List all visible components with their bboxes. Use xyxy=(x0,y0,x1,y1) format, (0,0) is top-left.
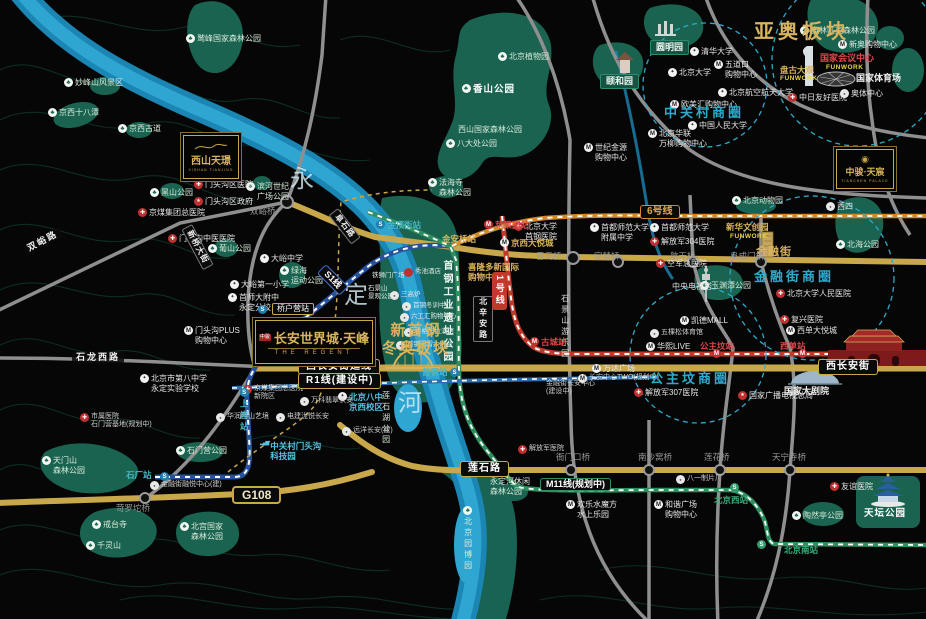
gongzhufen-m-icon: M xyxy=(712,349,721,358)
dot-icon: ● xyxy=(216,413,225,422)
beijing-west-station-text: 北京西站 xyxy=(714,495,748,505)
xiangshan-park-text: 香山公园 xyxy=(473,84,515,95)
beijing-south-station-text: 北京南站 xyxy=(784,545,818,555)
dot-icon: ● xyxy=(402,302,411,311)
youyi-hospital: ✚友谊医院 xyxy=(830,482,873,492)
lianhua-bridge: 莲花桥 xyxy=(704,452,730,462)
school-icon: ✦ xyxy=(668,68,677,77)
jinrongjie-circle: 金融街商圈 xyxy=(754,269,834,285)
badachu-park: ♣八大处公园 xyxy=(446,139,497,149)
heishan-park-text: 黑山公园 xyxy=(161,188,193,198)
xishan-name: 西山天璟 xyxy=(191,152,231,167)
changan-center-two-text: 长安中心TWO(规划中) xyxy=(589,374,659,382)
shuangyu-bridge: 双峪桥 xyxy=(250,206,276,216)
hosp-icon: ✚ xyxy=(780,315,789,324)
shimenying-park: ♣石门营公园 xyxy=(176,446,227,456)
changan-pill-text: 西长安街 xyxy=(826,361,870,373)
fuxing-hospital: ✚复兴医院 xyxy=(780,315,823,325)
jiufeng-forest-park-text: 鹫峰国家森林公园 xyxy=(197,34,261,44)
bj-no8-jingxi-campus-text: 北京八中 京西校区 xyxy=(349,392,383,412)
youyi-hospital-text: 友谊医院 xyxy=(841,482,873,492)
park-icon: ♣ xyxy=(48,108,57,117)
bayi-film-studio-text: 八一制片厂 xyxy=(687,475,722,483)
dot-icon: ● xyxy=(840,89,849,98)
river-char-he: 河 xyxy=(398,390,422,419)
cnu-affiliated-school: ✦首都师范大学 附属中学 xyxy=(590,223,649,242)
hosp-icon: ✚ xyxy=(634,388,643,397)
shimenying-park-text: 石门营公园 xyxy=(187,446,227,456)
wukesong-arena-text: 五棵松体育馆 xyxy=(661,329,703,337)
hosp-icon: ✚ xyxy=(830,482,839,491)
vanke-feicui-changan-text: 万科翡翠长安 xyxy=(311,397,353,405)
shimenying-hospital-base: ✚市属医院 石门营基地(规划中) xyxy=(80,413,152,430)
fuxing-hospital-text: 复兴医院 xyxy=(791,315,823,325)
jingxi-shibatan: ♣京西十八潭 xyxy=(48,108,99,118)
mall-icon: M xyxy=(648,129,657,138)
xinhua-cultural-park-text: 新华文创园 xyxy=(726,222,769,232)
pku-peoples-hospital: ✚北京大学人民医院 xyxy=(776,289,851,299)
yamenkou-bridge: 衙门口桥 xyxy=(556,452,590,462)
shuangyu-bridge-text: 双峪桥 xyxy=(250,206,276,216)
heishan-park: ♣黑山公园 xyxy=(150,188,193,198)
yuanmingyuan: 圆明园 xyxy=(650,40,689,55)
gov-icon: ★ xyxy=(194,197,203,206)
tianchen-emblem-icon: ◉ xyxy=(861,155,869,164)
mall-icon: M xyxy=(184,326,193,335)
zgc-mentougou-techpark-text: 中关村门头沟 科技园 xyxy=(270,441,321,461)
wukesong-arena: ●五棵松体育馆 xyxy=(650,329,703,338)
dot-icon: ● xyxy=(676,475,685,484)
yuanyang-changan-text: 远洋长安(建) xyxy=(353,427,393,435)
pushan-park: ♣葡山公园 xyxy=(208,244,251,254)
line1-pill-text: 1号线 xyxy=(494,275,505,307)
liugonghui-mall-text: 六工汇购物中心 xyxy=(411,313,457,321)
line1-pill: 1号线 xyxy=(492,272,507,310)
pangu-funwork-text: FUNWORK xyxy=(780,75,817,83)
beixinan-road-pill-text: 北辛安路 xyxy=(478,297,488,341)
ncpa-grand-theatre-text: 国家大剧院 xyxy=(784,386,829,397)
badachu-park-text: 八大处公园 xyxy=(457,139,497,149)
summer-palace-text: 颐和园 xyxy=(606,76,633,87)
xisi: ●西四 xyxy=(826,202,853,212)
school-icon: ✦ xyxy=(260,254,269,263)
tiantan-park-text: 天坛公园 xyxy=(864,508,906,519)
yaao-block-title-text: 亚奥板块 xyxy=(754,20,850,44)
ncc-funwork: FUNWORK xyxy=(826,64,863,72)
m11-line-pill-text: M11线(规划中) xyxy=(546,479,605,490)
mentougou-hospital-text: 门头沟区医院 xyxy=(205,180,253,190)
jinyuan-bridge: 晋元桥 xyxy=(536,251,562,261)
shougang-winter-training: ●首钢冬训中心 xyxy=(402,302,452,311)
huaxi-live: M华熙LIVE xyxy=(646,342,690,352)
mentougou-government: ★门头沟区政府 xyxy=(194,197,253,207)
dayu-middle-school: ✦大峪中学 xyxy=(260,254,303,264)
park-icon: ♣ xyxy=(428,178,437,187)
park-icon: ♣ xyxy=(462,84,471,93)
mall-icon: M xyxy=(786,326,795,335)
main-project-name-row: 中骏 长安世界城·天峰 xyxy=(259,328,369,347)
fushi-road-pill-text: 阜石路 xyxy=(333,213,357,240)
jinanqiao-station-text: 金安桥站 xyxy=(442,234,476,244)
sg-icon: S xyxy=(730,483,739,492)
hexie-plaza-mall: M和谐广场 购物中心 xyxy=(654,500,697,519)
m11-line-pill: M11线(规划中) xyxy=(540,478,611,491)
park-icon: ♣ xyxy=(150,188,159,197)
wudaokou-mall-text: 五道口 购物中心 xyxy=(725,60,757,79)
qianlingshan-text: 千灵山 xyxy=(97,541,121,551)
jingmei-new-campus: ✚京煤集团总医院 新院区 xyxy=(243,385,303,402)
g108-badge-text: G108 xyxy=(242,488,271,502)
changan-pill: 西长安街 xyxy=(818,359,878,375)
shichang-station: 石厂站 xyxy=(126,470,152,480)
tianmenshan-forest-park-text: 天门山 森林公园 xyxy=(53,456,85,475)
jingxi-gudao-text: 京西古道 xyxy=(129,124,161,134)
s1-icon: S xyxy=(240,388,249,397)
keluotuo-bridge-text: 苛罗坨桥 xyxy=(116,503,150,513)
beixinan-road-pill: 北辛安路 xyxy=(473,296,493,342)
qiaohuying-station: 桥户营站 xyxy=(272,303,314,315)
tielishimen-plaza: 铁狮门广场 xyxy=(372,272,405,280)
gucheng-station-text: 古城站 xyxy=(541,337,567,347)
fuchengmen-bridge-text: 阜成门桥 xyxy=(730,251,764,261)
jingxi-shibatan-text: 京西十八潭 xyxy=(59,108,99,118)
s1-icon: S xyxy=(376,220,385,229)
qiaohuying-station-text: 桥户营站 xyxy=(277,304,309,314)
lvhai-sports-park-text: 绿海 运动公园 xyxy=(291,266,323,285)
yongdinghe-leisure-park: 永定河休闲 森林公园 xyxy=(490,477,530,496)
tielishimen-plaza-text: 铁狮门广场 xyxy=(372,272,405,280)
mall-icon: M xyxy=(714,60,723,69)
pingguoyuan-station-text: 苹果园站 xyxy=(495,220,529,230)
xishan-en: XISHAN TIANJING xyxy=(189,168,234,172)
rdot-icon: ● xyxy=(404,268,413,277)
huaxi-live-text: 华熙LIVE xyxy=(657,342,690,352)
zhongjun-seal: 中骏 xyxy=(259,334,271,341)
hangtian-bridge-text: 航天桥 xyxy=(670,251,696,261)
tiantan-park: 天坛公园 xyxy=(864,508,906,519)
line6-pill: 6号线 xyxy=(640,205,680,219)
shichang-s-icon: S xyxy=(160,472,169,481)
hualian-wanliu-mall: M北京华联 万柳购物中心 xyxy=(648,129,707,148)
miaofengshan-scenic: ♣妙峰山风景区 xyxy=(64,78,123,88)
jingmei-group-hospital: ✚京煤集团总医院 xyxy=(138,208,205,218)
taoranting-park-text: 陶然亭公园 xyxy=(803,511,843,521)
dayu-first-primary: ✦大峪第一小学 xyxy=(230,280,289,290)
pla-307-hospital: ✚解放军307医院 xyxy=(634,388,698,398)
lianshi-road-pill-text: 莲石路 xyxy=(468,463,501,475)
tsinghua-university-text: 清华大学 xyxy=(701,47,733,57)
pingguoyuan-station: M苹果园站 xyxy=(484,220,529,230)
xiangshan-park: ♣香山公园 xyxy=(462,84,515,95)
park-icon: ♣ xyxy=(118,124,127,133)
gucheng-station: M古城站 xyxy=(530,337,567,347)
nanshawo-bridge: 南沙窝桥 xyxy=(638,452,672,462)
shougang-station: 首钢站 xyxy=(422,367,448,377)
beijing-zoo-text: 北京动物园 xyxy=(743,196,783,206)
sangaolu-showplace: ●三高炉 xyxy=(390,291,421,300)
park-icon: ♣ xyxy=(498,52,507,61)
mall-icon: M xyxy=(500,238,509,247)
mall-icon: M xyxy=(654,500,663,509)
wanda-plaza-text: 万达广场 xyxy=(603,364,635,374)
jietai-temple-text: 戒台寺 xyxy=(103,520,127,530)
mall-icon: M xyxy=(646,342,655,351)
s1-icon: S xyxy=(160,472,169,481)
dayu-first-primary-text: 大峪第一小学 xyxy=(241,280,289,290)
wudaokou-mall: M五道口 购物中心 xyxy=(714,60,757,79)
jietai-temple: ♣戒台寺 xyxy=(92,520,127,530)
tianchen-name: 中骏·天宸 xyxy=(845,165,884,178)
shougang-block-title-text: 新首钢 冬奥板块 xyxy=(382,322,450,358)
xisi-text: 西四 xyxy=(837,202,853,212)
hosp-icon: ✚ xyxy=(194,180,203,189)
mred-icon: M xyxy=(530,337,539,346)
gongzhufen-circle: 公主坟商圈 xyxy=(650,371,730,387)
jinanqiao-station: 金安桥站 xyxy=(442,234,476,244)
xiuchi-hotel-text: 秀池酒店 xyxy=(415,268,441,276)
beihai-park: ♣北海公园 xyxy=(836,240,879,250)
xidan-joy-city: M西单大悦城 xyxy=(786,326,837,336)
gold-flourish-icon xyxy=(194,143,228,151)
miaofengshan-scenic-text: 妙峰山风景区 xyxy=(75,78,123,88)
yuanmingyuan-text: 圆明园 xyxy=(656,42,683,53)
botanical-garden-text: 北京植物园 xyxy=(509,52,549,62)
capital-normal-university-text: 首都师范大学 xyxy=(661,223,709,233)
hosp-icon: ✚ xyxy=(776,289,785,298)
hangtian-bridge: 航天桥 xyxy=(670,251,696,261)
xishan-tianjing-logo: 西山天璟 XISHAN TIANJING xyxy=(183,135,239,179)
hosp-icon: ✚ xyxy=(518,445,527,454)
main-project-en: THE REGENT xyxy=(275,350,354,356)
yuanboyuan-park: ♣北京园博园 xyxy=(463,506,473,572)
beijing-south-station: 北京南站 xyxy=(784,545,818,555)
xinhua-cultural-park: 新华文创园 xyxy=(726,222,769,232)
gov-icon: ★ xyxy=(738,391,747,400)
dot-icon: ● xyxy=(300,397,309,406)
s1-line-pill-text: S1线 xyxy=(322,269,344,291)
capitaland-mall: M凯德MALL xyxy=(680,316,728,326)
park-icon: ♣ xyxy=(42,456,51,465)
bj-no8-yongding-school-text: 北京市第八中学 永定实验学校 xyxy=(151,374,207,393)
mentougou-plus-mall: M门头沟PLUS 购物中心 xyxy=(184,326,240,345)
river-char-yong-text: 永 xyxy=(290,166,314,195)
park-icon: ♣ xyxy=(836,240,845,249)
shijijinyuan-mall-text: 世纪金源 购物中心 xyxy=(595,143,627,162)
dot-icon: ● xyxy=(400,313,409,322)
school-icon: ✦ xyxy=(590,223,599,232)
beijing-zoo: ♣北京动物园 xyxy=(732,196,783,206)
mred-icon: M xyxy=(798,349,807,358)
wanda-plaza: M万达广场 xyxy=(592,364,635,374)
dot-icon: ● xyxy=(276,413,285,422)
pla-304-hospital: ✚解放军304医院 xyxy=(650,237,714,247)
yuanboyuan-park-text: 北京园博园 xyxy=(463,517,473,572)
pla-307-hospital-text: 解放军307医院 xyxy=(645,388,698,398)
yamenkou-bridge-text: 衙门口桥 xyxy=(556,452,590,462)
main-project-name: 长安世界城·天峰 xyxy=(274,328,369,347)
tianmenshan-forest-park: ♣天门山 森林公园 xyxy=(42,456,85,475)
cctv-tower-text: 中央电视塔 xyxy=(672,282,712,292)
peking-university-text: 北京大学 xyxy=(679,68,711,78)
hosp-icon: ✚ xyxy=(650,237,659,246)
keluotuo-bridge: 苛罗坨桥 xyxy=(116,503,150,513)
main-project-logo: 中骏 长安世界城·天峰 THE REGENT xyxy=(255,320,373,364)
line6-pill-text: 6号线 xyxy=(647,206,673,218)
sig-icon: ▂▄▆ xyxy=(260,441,268,446)
fuchengmen-bridge: 阜成门桥 xyxy=(730,251,764,261)
shougang-winter-training-text: 首钢冬训中心 xyxy=(413,302,452,310)
gongzhufen-circle-text: 公主坟商圈 xyxy=(650,371,730,387)
pangu-plaza: 盘古大观 xyxy=(780,65,814,75)
peking-university: ✦北京大学 xyxy=(668,68,711,78)
park-icon: ♣ xyxy=(186,34,195,43)
shangan-station-text: 上岸站 xyxy=(239,399,249,434)
hosp-icon: ✚ xyxy=(138,208,147,217)
shougang-s-icon: S xyxy=(450,368,459,377)
binhe-century-plaza-park-text: 滨河世纪 广场公园 xyxy=(257,182,289,201)
shuangyu-road-label: 双峪路 xyxy=(22,227,63,256)
park-icon: ♣ xyxy=(64,78,73,87)
national-convention-center-text: 国家会议中心 xyxy=(820,53,874,64)
tianchen-en: TIANCHEN PALACE xyxy=(841,179,888,183)
xinhua-funwork: FUNWORK xyxy=(730,233,767,241)
shimenying-hospital-base-text: 市属医院 石门营基地(规划中) xyxy=(91,413,152,430)
capitaland-mall-text: 凯德MALL xyxy=(691,316,728,326)
tianningsi-bridge-text: 天宁寺桥 xyxy=(772,452,806,462)
park-icon: ♣ xyxy=(86,541,95,550)
water-magic-cube-park-text: 欢乐水魔方 水上乐园 xyxy=(577,500,617,519)
beihai-park-text: 北海公园 xyxy=(847,240,879,250)
beigong-forest-park-text: 北宫国家 森林公园 xyxy=(191,522,223,541)
china-japan-hospital: ✚中日友好医院 xyxy=(788,93,847,103)
beijing-location-map: ♣鹫峰国家森林公园♣妙峰山风景区♣京西十八潭♣京西古道♣黑山公园♣葡山公园♣绿海… xyxy=(0,0,926,619)
hosp-icon: ✚ xyxy=(80,413,89,422)
dot-icon: ● xyxy=(826,202,835,211)
sg-icon: S xyxy=(757,540,766,549)
national-stadium: 国家体育场 xyxy=(856,73,901,84)
mentougou-hospital: ✚门头沟区医院 xyxy=(194,180,253,190)
park-icon: ♣ xyxy=(792,511,801,520)
mentougou-plus-mall-text: 门头沟PLUS 购物中心 xyxy=(195,326,240,345)
shougang-station-text: 首钢站 xyxy=(422,367,448,377)
dot-icon: ● xyxy=(650,329,659,338)
ncpa-grand-theatre: 国家大剧院 xyxy=(784,386,829,397)
mall-icon: M xyxy=(566,500,575,509)
dayu-middle-school-text: 大峪中学 xyxy=(271,254,303,264)
jingmei-group-hospital-text: 京煤集团总医院 xyxy=(149,208,205,218)
mred-icon: M xyxy=(712,349,721,358)
taoranting-park: ♣陶然亭公园 xyxy=(792,511,843,521)
lianhua-bridge-text: 莲花桥 xyxy=(704,452,730,462)
capital-normal-university: ✦首都师范大学 xyxy=(650,223,709,233)
xidan-joy-city-text: 西单大悦城 xyxy=(797,326,837,336)
mall-icon: M xyxy=(584,143,593,152)
longyue-changan-text: 电建泷悦长安 xyxy=(287,413,329,421)
shangan-station: S上岸站 xyxy=(239,388,249,434)
xiuchi-hotel: ●秀池酒店 xyxy=(404,268,441,277)
liugonghui-mall: ●六工汇购物中心 xyxy=(400,313,457,322)
olympic-sports-center: ●奥体中心 xyxy=(840,89,883,99)
xidan-m-icon: M xyxy=(798,349,807,358)
zgc-mentougou-techpark: ▂▄▆中关村门头沟 科技园 xyxy=(260,441,321,461)
yaao-block-title: 亚奥板块 xyxy=(754,20,850,44)
cnu-affiliated-school-text: 首都师范大学 附属中学 xyxy=(601,223,649,242)
jrj-changan-center-text: 金融街长安中心 (建设中) xyxy=(546,380,595,397)
park-icon: ♣ xyxy=(92,520,101,529)
fahaisi-forest-park-text: 法海寺 森林公园 xyxy=(439,178,471,197)
botanical-garden: ♣北京植物园 xyxy=(498,52,549,62)
qiaohuying-s-icon: S xyxy=(258,305,267,314)
tianchen-logo: ◉ 中骏·天宸 TIANCHEN PALACE xyxy=(836,149,894,189)
school-icon: ✦ xyxy=(140,374,149,383)
jiufeng-forest-park: ♣鹫峰国家森林公园 xyxy=(186,34,261,44)
pku-peoples-hospital-text: 北京大学人民医院 xyxy=(787,289,851,299)
park-icon: ♣ xyxy=(463,506,472,515)
logo-divider xyxy=(268,348,361,349)
dinghui-bridge: 定慧桥 xyxy=(594,251,620,261)
hualian-wanliu-mall-text: 北京华联 万柳购物中心 xyxy=(659,129,707,148)
yuanyang-changan: ●远洋长安(建) xyxy=(342,427,393,436)
park-icon: ♣ xyxy=(176,446,185,455)
zhongguancun-circle-text: 中关村商圈 xyxy=(664,105,744,121)
school-icon: ✦ xyxy=(650,223,659,232)
dot-icon: ● xyxy=(150,481,159,490)
national-stadium-text: 国家体育场 xyxy=(856,73,901,84)
yongdinghe-leisure-park-text: 永定河休闲 森林公园 xyxy=(490,477,530,496)
sangaolu-showplace-text: 三高炉 xyxy=(401,291,421,299)
beijing-west-station: 北京西站 xyxy=(714,495,748,505)
buaa-university: ✦北京航空航天大学 xyxy=(718,88,793,98)
mall-icon: M xyxy=(680,316,689,325)
hosp-icon: ✚ xyxy=(168,234,177,243)
r1-line-pill-text: R1线(建设中) xyxy=(306,375,373,387)
beijing-west-s-icon: S xyxy=(730,483,739,492)
jingxi-joy-city: M京西大悦城 xyxy=(500,238,554,248)
xishan-national-forest-park: 西山国家森林公园 xyxy=(458,125,522,135)
dot-icon: ● xyxy=(342,427,351,436)
mentougou-government-text: 门头沟区政府 xyxy=(205,197,253,207)
jindingjie-station-text: 金顶街站 xyxy=(387,220,421,230)
buaa-university-text: 北京航空航天大学 xyxy=(729,88,793,98)
jinrongjie-circle-text: 金融街商圈 xyxy=(754,269,834,285)
s1-icon: S xyxy=(258,305,267,314)
longyue-changan: ●电建泷悦长安 xyxy=(276,413,329,422)
fahaisi-forest-park: ♣法海寺 森林公园 xyxy=(428,178,471,197)
beigong-forest-park: ♣北宫国家 森林公园 xyxy=(180,522,223,541)
tsinghua-university: ✦清华大学 xyxy=(690,47,733,57)
pangu-funwork: FUNWORK xyxy=(780,75,817,83)
jinyuan-bridge-text: 晋元桥 xyxy=(536,251,562,261)
park-icon: ♣ xyxy=(208,244,217,253)
park-icon: ♣ xyxy=(446,139,455,148)
mred-icon: M xyxy=(484,220,493,229)
nanshawo-bridge-text: 南沙窝桥 xyxy=(638,452,672,462)
shijingshan-amusement-park-text: 石景山游乐园 xyxy=(560,294,570,360)
river-char-he-text: 河 xyxy=(398,390,422,419)
xishan-national-forest-park-text: 西山国家森林公园 xyxy=(458,125,522,135)
school-icon: ✦ xyxy=(718,88,727,97)
shilongxi-road-label: 石龙西路 xyxy=(72,352,124,363)
ncc-funwork-text: FUNWORK xyxy=(826,64,863,72)
xinhua-funwork-text: FUNWORK xyxy=(730,233,767,241)
map-labels-layer: ♣鹫峰国家森林公园♣妙峰山风景区♣京西十八潭♣京西古道♣黑山公园♣葡山公园♣绿海… xyxy=(0,0,926,619)
s1-icon: S xyxy=(450,368,459,377)
bj-no8-yongding-school: ✦北京市第八中学 永定实验学校 xyxy=(140,374,207,393)
river-char-yong: 永 xyxy=(290,166,314,195)
mall-icon: M xyxy=(592,364,601,373)
school-icon: ✦ xyxy=(228,293,237,302)
olympic-sports-center-text: 奥体中心 xyxy=(851,89,883,99)
